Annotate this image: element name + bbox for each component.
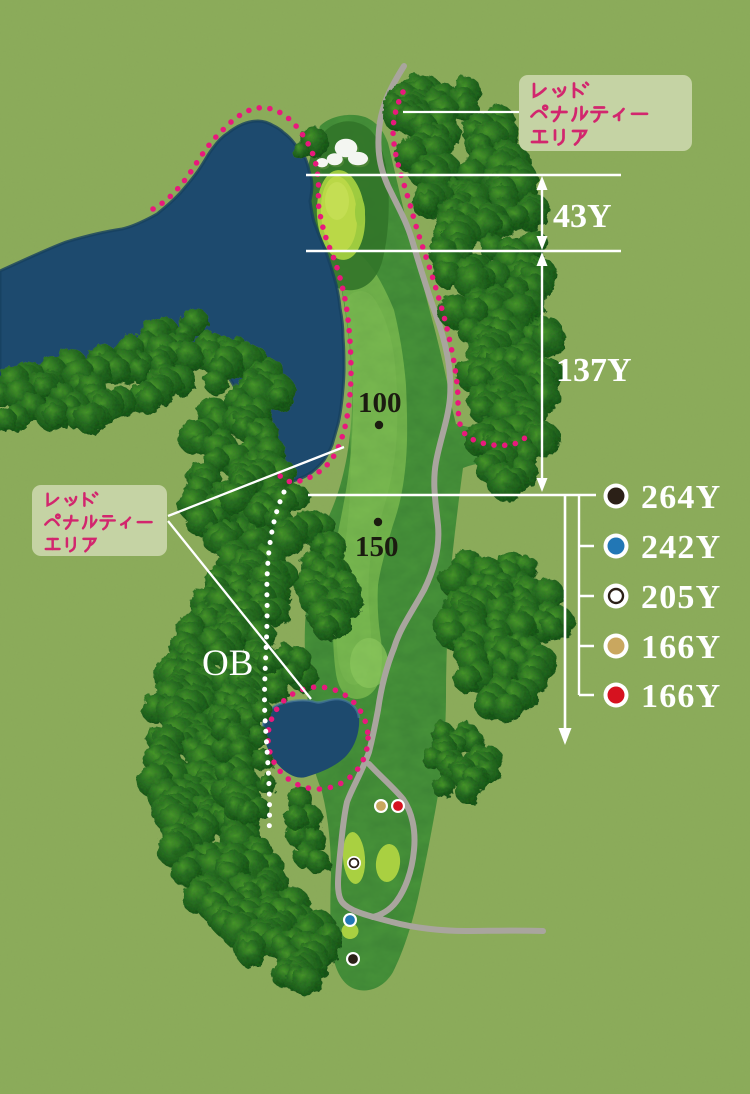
- svg-text:166Y: 166Y: [641, 629, 721, 666]
- svg-text:242Y: 242Y: [641, 529, 721, 566]
- svg-text:137Y: 137Y: [556, 352, 632, 389]
- svg-text:166Y: 166Y: [641, 678, 721, 715]
- svg-text:205Y: 205Y: [641, 579, 721, 616]
- svg-text:264Y: 264Y: [641, 479, 721, 516]
- svg-text:100: 100: [358, 387, 402, 419]
- svg-text:OB: OB: [202, 643, 253, 684]
- svg-text:150: 150: [355, 531, 399, 563]
- svg-text:43Y: 43Y: [553, 198, 612, 235]
